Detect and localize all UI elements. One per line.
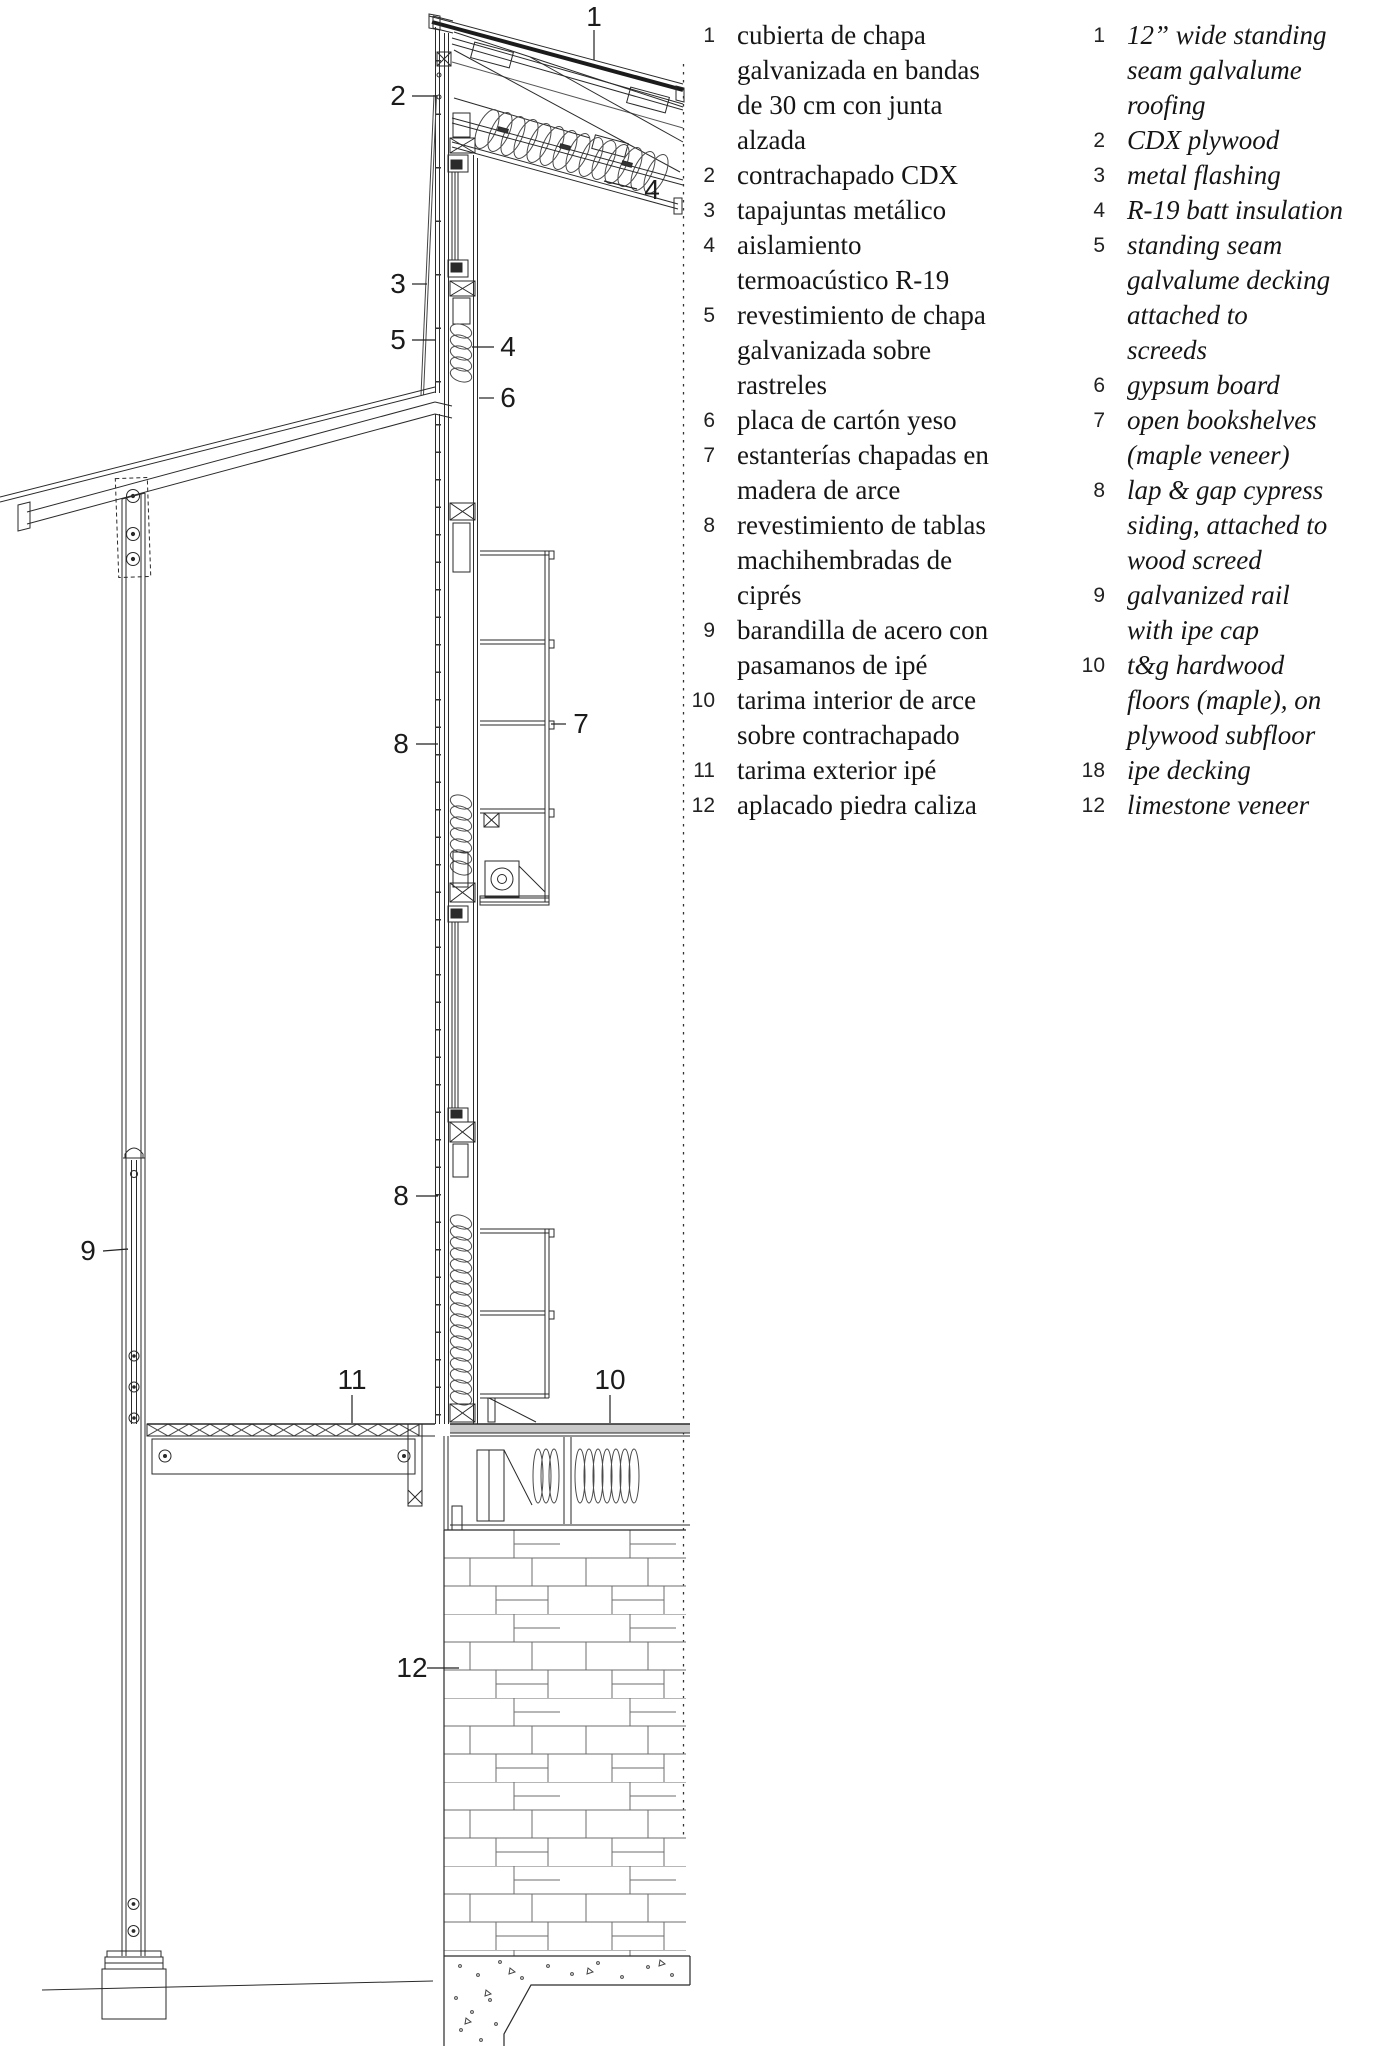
legend-item-number: 5 [1080, 228, 1105, 263]
shade-roller [485, 861, 545, 897]
legend-item-number [690, 123, 715, 158]
callout-6: 6 [500, 384, 516, 412]
legend-row: 2CDX plywood [1080, 123, 1379, 158]
legend-item-number: 12 [690, 788, 715, 823]
legend-row: seam galvalume [1080, 53, 1379, 88]
legend-spanish: 1cubierta de chapagalvanizada en bandasd… [690, 18, 1062, 823]
legend-item-number [690, 578, 715, 613]
callout-12: 12 [396, 1654, 427, 1682]
main-wall [421, 16, 549, 1424]
legend-row: plywood subfloor [1080, 718, 1379, 753]
legend-item-text: galvanizada sobre [737, 333, 931, 368]
legend-row: rastreles [690, 368, 1062, 403]
callout-8: 8 [393, 730, 409, 758]
legend-item-text: 12” wide standing [1127, 18, 1327, 53]
legend-item-text: screeds [1127, 333, 1207, 368]
legend-item-number [1080, 508, 1105, 543]
legend-item-text: madera de arce [737, 473, 900, 508]
legend-row: (maple veneer) [1080, 438, 1379, 473]
legend-row: de 30 cm con junta [690, 88, 1062, 123]
legend-row: 8lap & gap cypress [1080, 473, 1379, 508]
legend-item-text: de 30 cm con junta [737, 88, 942, 123]
legend-item-number: 18 [1080, 753, 1105, 788]
legend-item-text: tapajuntas metálico [737, 193, 946, 228]
legend-item-text: open bookshelves [1127, 403, 1317, 438]
legend-item-number: 8 [1080, 473, 1105, 508]
legend-item-number [690, 263, 715, 298]
legend-item-text: limestone veneer [1127, 788, 1309, 823]
legend-row: 12aplacado piedra caliza [690, 788, 1062, 823]
legend-item-number: 2 [690, 158, 715, 193]
legend-row: termoacústico R-19 [690, 263, 1062, 298]
legend-item-text: ciprés [737, 578, 801, 613]
legend-row: 9barandilla de acero con [690, 613, 1062, 648]
legend-item-text: contrachapado CDX [737, 158, 958, 193]
legend-item-number: 9 [1080, 578, 1105, 613]
legend-item-text: standing seam [1127, 228, 1282, 263]
detail-drawing [0, 0, 700, 2046]
legend-item-text: tarima exterior ipé [737, 753, 936, 788]
legend-item-number: 8 [690, 508, 715, 543]
legend-item-text: lap & gap cypress [1127, 473, 1323, 508]
legend-item-number [1080, 438, 1105, 473]
legend-item-text: pasamanos de ipé [737, 648, 927, 683]
legend-item-number [1080, 333, 1105, 368]
legend-item-text: aplacado piedra caliza [737, 788, 977, 823]
callout-5: 5 [390, 326, 406, 354]
legend-item-text: placa de cartón yeso [737, 403, 957, 438]
legend-item-number [690, 473, 715, 508]
legend-item-number [1080, 298, 1105, 333]
legend-row: floors (maple), on [1080, 683, 1379, 718]
legend-row: sobre contrachapado [690, 718, 1062, 753]
legend-item-text: galvanized rail [1127, 578, 1290, 613]
legend-item-number: 7 [690, 438, 715, 473]
legend-item-text: gypsum board [1127, 368, 1280, 403]
post-footing [102, 1951, 166, 2019]
callout-2: 2 [390, 82, 406, 110]
legend-row: attached to [1080, 298, 1379, 333]
legend-item-number [690, 648, 715, 683]
legend-item-number [1080, 543, 1105, 578]
legend-item-number [690, 333, 715, 368]
wall-insulation-lower [449, 1212, 474, 1407]
legend-item-text: ipe decking [1127, 753, 1251, 788]
wall-insulation-mid [449, 792, 474, 877]
legend-row: 8revestimiento de tablas [690, 508, 1062, 543]
ground-line [42, 1981, 433, 1990]
legend-row: 12limestone veneer [1080, 788, 1379, 823]
legend-item-number [1080, 88, 1105, 123]
legend-item-number: 4 [1080, 193, 1105, 228]
legend-row: madera de arce [690, 473, 1062, 508]
legend-english: 112” wide standingseam galvalumeroofing2… [1080, 18, 1379, 823]
legend-row: 1cubierta de chapa [690, 18, 1062, 53]
legend-item-number [1080, 263, 1105, 298]
legend-item-text: metal flashing [1127, 158, 1281, 193]
legend-item-number [1080, 613, 1105, 648]
legend-item-text: R-19 batt insulation [1127, 193, 1343, 228]
legend-row: 4aislamiento [690, 228, 1062, 263]
legend-row: 5revestimiento de chapa [690, 298, 1062, 333]
legend-item-number [690, 543, 715, 578]
legend-row: 2contrachapado CDX [690, 158, 1062, 193]
legend-item-number: 11 [690, 753, 715, 788]
legend-item-text: seam galvalume [1127, 53, 1302, 88]
callout-9: 9 [80, 1237, 96, 1265]
callout-leaders [103, 30, 637, 1668]
upper-bookshelf [480, 551, 554, 902]
legend-item-text: tarima interior de arce [737, 683, 976, 718]
legend-row: roofing [1080, 88, 1379, 123]
lower-bookshelf [480, 1229, 554, 1422]
legend-item-text: machihembradas de [737, 543, 952, 578]
interior-floor [444, 1424, 690, 1530]
legend-item-text: revestimiento de chapa [737, 298, 986, 333]
callout-7: 7 [573, 710, 589, 738]
legend-item-text: aislamiento [737, 228, 861, 263]
wall-insulation-upper [449, 321, 474, 384]
architectural-detail-page: { "drawing": { "callouts": [ {"n":"1","x… [0, 0, 1379, 2046]
legend-row: pasamanos de ipé [690, 648, 1062, 683]
legend-item-number [690, 53, 715, 88]
limestone-veneer-wall [444, 1530, 686, 1956]
legend-item-number: 1 [1080, 18, 1105, 53]
legend-item-number [1080, 53, 1105, 88]
legend-item-text: galvanizada en bandas [737, 53, 980, 88]
upper-window [448, 113, 475, 296]
legend-row: 3metal flashing [1080, 158, 1379, 193]
legend-item-number [690, 88, 715, 123]
canopy-post [102, 493, 166, 2019]
legend-item-number: 9 [690, 613, 715, 648]
legend-item-text: wood screed [1127, 543, 1262, 578]
callout-11: 11 [337, 1366, 366, 1394]
callout-3: 3 [390, 270, 406, 298]
legend-item-text: floors (maple), on [1127, 683, 1321, 718]
legend-item-text: t&g hardwood [1127, 648, 1284, 683]
legend-row: galvalume decking [1080, 263, 1379, 298]
legend-item-number: 10 [1080, 648, 1105, 683]
legend-row: with ipe cap [1080, 613, 1379, 648]
legend-item-text: alzada [737, 123, 806, 158]
lower-window [448, 906, 475, 1177]
legend-item-number: 2 [1080, 123, 1105, 158]
legend-row: machihembradas de [690, 543, 1062, 578]
legend-item-number [1080, 683, 1105, 718]
legend-item-text: siding, attached to [1127, 508, 1327, 543]
legend-item-number: 10 [690, 683, 715, 718]
legend-item-number: 4 [690, 228, 715, 263]
legend-item-text: roofing [1127, 88, 1206, 123]
legend-item-number [1080, 718, 1105, 753]
legend-item-text: revestimiento de tablas [737, 508, 986, 543]
legend-item-text: attached to [1127, 298, 1248, 333]
legend-row: 10tarima interior de arce [690, 683, 1062, 718]
legend-row: 6gypsum board [1080, 368, 1379, 403]
legend-row: ciprés [690, 578, 1062, 613]
legend-item-number: 6 [1080, 368, 1105, 403]
legend-row: 112” wide standing [1080, 18, 1379, 53]
canopy-roof [0, 387, 435, 578]
legend-row: 10t&g hardwood [1080, 648, 1379, 683]
legend-item-text: (maple veneer) [1127, 438, 1290, 473]
legend-item-text: sobre contrachapado [737, 718, 960, 753]
legend-row: 18ipe decking [1080, 753, 1379, 788]
callout-1: 1 [586, 3, 602, 31]
legend-row: 7open bookshelves [1080, 403, 1379, 438]
legend-row: 3tapajuntas metálico [690, 193, 1062, 228]
exterior-deck [147, 1424, 435, 1506]
legend-row: screeds [1080, 333, 1379, 368]
legend-row: siding, attached to [1080, 508, 1379, 543]
legend-item-number: 3 [690, 193, 715, 228]
legend-row: 4R-19 batt insulation [1080, 193, 1379, 228]
legend-item-text: termoacústico R-19 [737, 263, 949, 298]
legend-item-text: cubierta de chapa [737, 18, 926, 53]
legend-item-number: 3 [1080, 158, 1105, 193]
legend-row: 9galvanized rail [1080, 578, 1379, 613]
legend-row: 7estanterías chapadas en [690, 438, 1062, 473]
legend-item-text: rastreles [737, 368, 827, 403]
legend-item-text: with ipe cap [1127, 613, 1259, 648]
legend-item-text: CDX plywood [1127, 123, 1279, 158]
floor-insulation [533, 1449, 639, 1503]
legend-item-text: galvalume decking [1127, 263, 1330, 298]
legend-item-number [690, 368, 715, 403]
legend-row: 11tarima exterior ipé [690, 753, 1062, 788]
callout-8: 8 [393, 1182, 409, 1210]
callout-4: 4 [644, 176, 660, 204]
legend-row: 6placa de cartón yeso [690, 403, 1062, 438]
legend-item-number: 5 [690, 298, 715, 333]
legend-row: wood screed [1080, 543, 1379, 578]
callout-4: 4 [500, 333, 516, 361]
callout-10: 10 [594, 1366, 625, 1394]
legend-item-number: 6 [690, 403, 715, 438]
concrete-stipple [455, 1960, 674, 2041]
bookshelves [480, 551, 554, 1422]
legend-item-text: plywood subfloor [1127, 718, 1315, 753]
legend-row: galvanizada sobre [690, 333, 1062, 368]
legend-row: alzada [690, 123, 1062, 158]
legend-item-number: 12 [1080, 788, 1105, 823]
legend-item-number: 1 [690, 18, 715, 53]
legend-item-number: 7 [1080, 403, 1105, 438]
concrete-footing [444, 1956, 690, 2046]
legend-row: galvanizada en bandas [690, 53, 1062, 88]
legend-row: 5standing seam [1080, 228, 1379, 263]
legend-item-text: estanterías chapadas en [737, 438, 989, 473]
legend-item-number [690, 718, 715, 753]
legend-item-text: barandilla de acero con [737, 613, 988, 648]
